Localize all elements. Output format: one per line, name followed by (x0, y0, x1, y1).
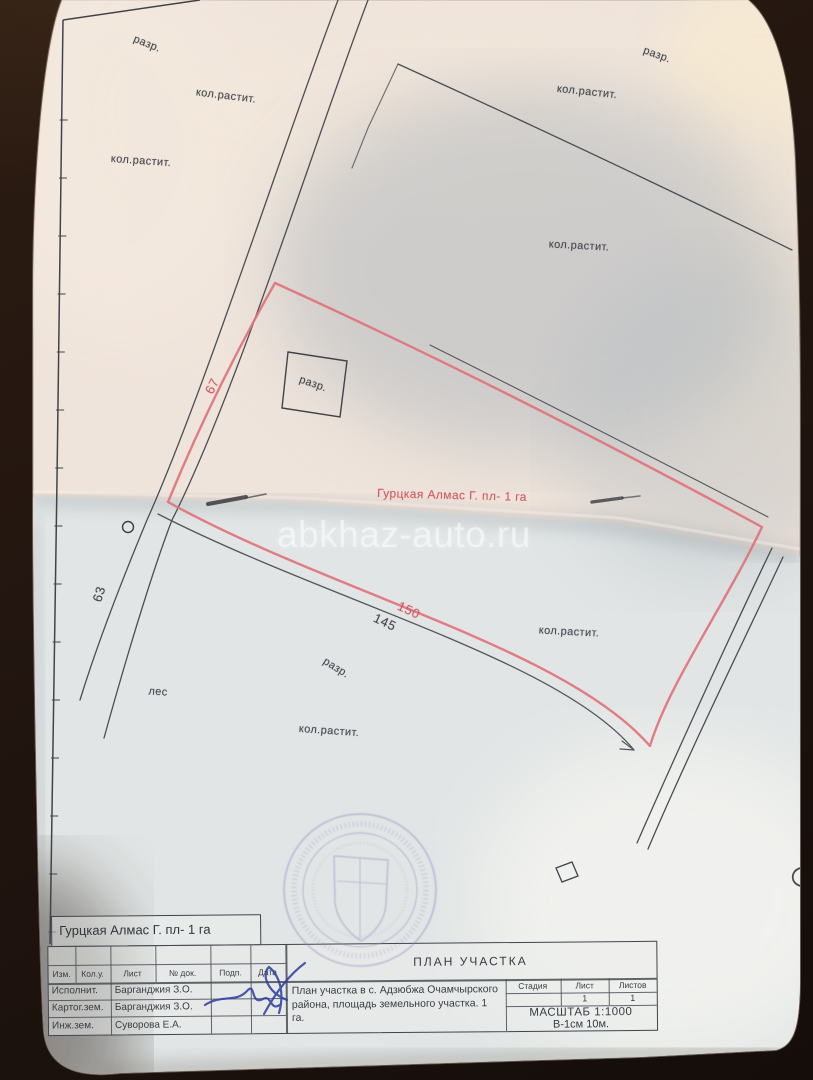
plan-drawing (0, 0, 813, 1080)
photo-of-plan-document: разр. кол.растит. кол.растит. разр. кол.… (0, 0, 813, 1080)
